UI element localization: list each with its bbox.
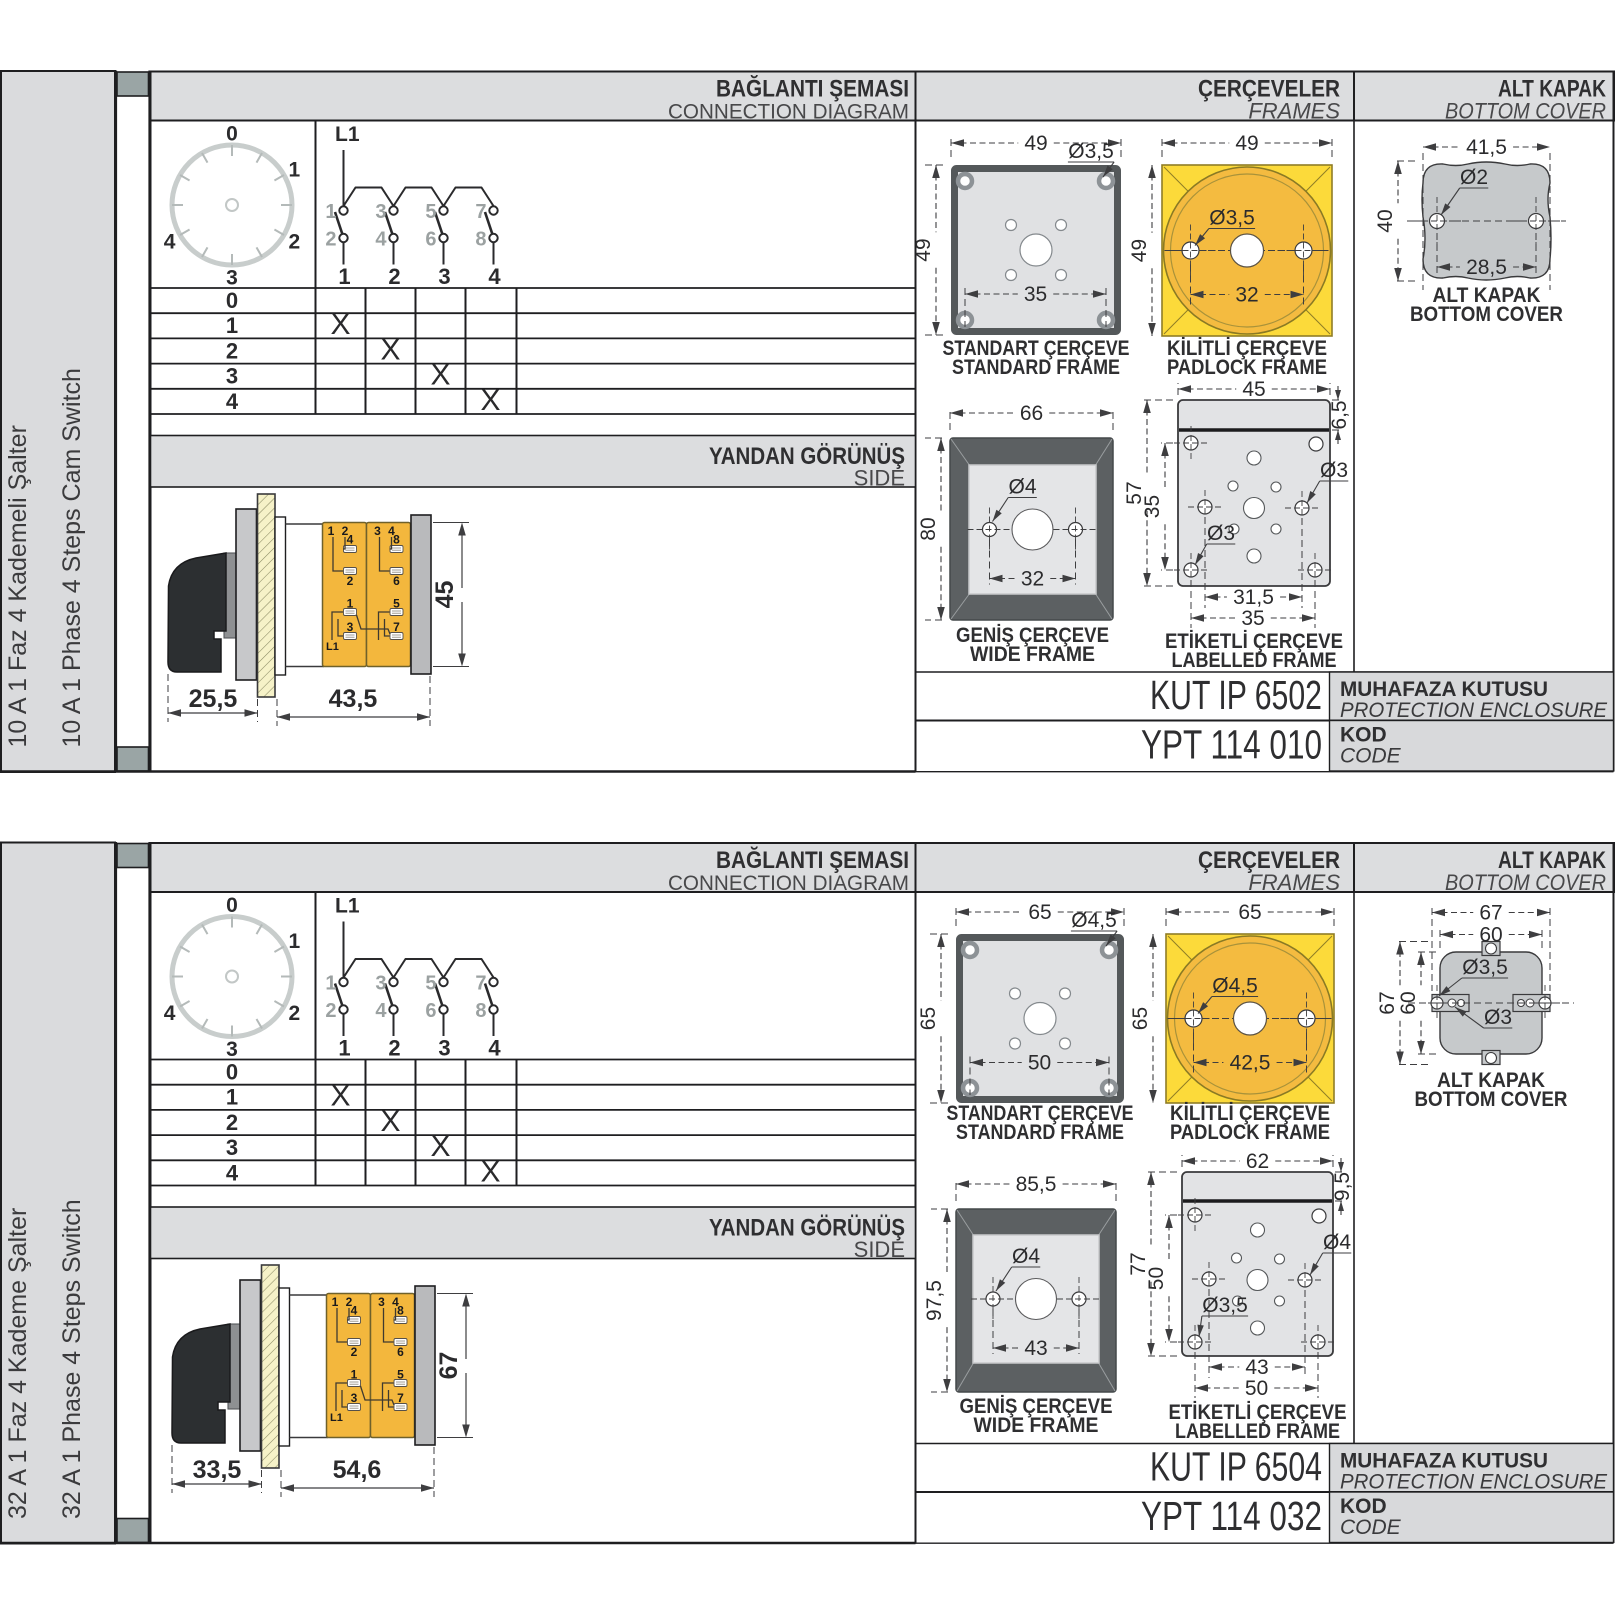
svg-text:KUT IP 6504: KUT IP 6504 (1150, 1444, 1322, 1490)
svg-text:49: 49 (1128, 239, 1151, 262)
svg-text:3: 3 (378, 1295, 385, 1309)
svg-text:CODE: CODE (1340, 1516, 1402, 1539)
svg-text:2: 2 (289, 1002, 301, 1025)
svg-text:1: 1 (338, 1036, 350, 1061)
svg-text:Ø3: Ø3 (1320, 459, 1348, 482)
svg-text:43: 43 (1245, 1356, 1268, 1379)
svg-text:5: 5 (397, 1368, 404, 1382)
svg-text:1: 1 (325, 973, 336, 995)
svg-text:SIDE: SIDE (854, 466, 905, 491)
svg-text:1: 1 (347, 597, 354, 611)
svg-text:MUHAFAZA KUTUSU: MUHAFAZA KUTUSU (1340, 678, 1548, 701)
svg-text:4: 4 (488, 264, 501, 289)
svg-text:4: 4 (375, 229, 387, 251)
svg-text:6: 6 (425, 1000, 436, 1022)
svg-text:50: 50 (1028, 1052, 1051, 1075)
svg-text:66: 66 (1020, 402, 1043, 425)
svg-text:MUHAFAZA KUTUSU: MUHAFAZA KUTUSU (1340, 1450, 1548, 1473)
svg-text:41,5: 41,5 (1466, 136, 1507, 159)
svg-text:Ø3: Ø3 (1484, 1006, 1512, 1029)
svg-text:43,5: 43,5 (329, 685, 378, 713)
svg-text:85,5: 85,5 (1016, 1173, 1057, 1196)
svg-text:35: 35 (1241, 607, 1264, 630)
svg-text:1: 1 (328, 524, 335, 538)
svg-text:50: 50 (1245, 1377, 1268, 1400)
svg-text:Ø3,5: Ø3,5 (1068, 140, 1114, 163)
svg-text:35: 35 (1141, 495, 1164, 518)
svg-text:1: 1 (226, 313, 238, 338)
svg-text:32 A 1 Phase 4 Steps Switch: 32 A 1 Phase 4 Steps Switch (58, 1199, 86, 1519)
svg-text:X: X (430, 1130, 450, 1163)
svg-text:YPT 114 010: YPT 114 010 (1141, 722, 1322, 768)
svg-text:8: 8 (475, 229, 486, 251)
svg-text:32: 32 (1235, 284, 1258, 307)
svg-text:32: 32 (1021, 568, 1044, 591)
svg-text:6: 6 (393, 574, 400, 588)
svg-text:L1: L1 (326, 641, 339, 653)
svg-text:65: 65 (1129, 1007, 1152, 1030)
svg-text:KUT IP 6502: KUT IP 6502 (1150, 672, 1322, 718)
svg-text:4: 4 (375, 1000, 387, 1022)
svg-text:X: X (330, 308, 350, 341)
svg-text:4: 4 (488, 1036, 501, 1061)
svg-text:8: 8 (397, 1304, 404, 1318)
svg-text:8: 8 (475, 1000, 486, 1022)
svg-text:5: 5 (425, 973, 436, 995)
svg-text:X: X (480, 384, 500, 417)
svg-text:65: 65 (917, 1007, 940, 1030)
svg-text:10 A 1 Faz 4 Kademeli Şalter: 10 A 1 Faz 4 Kademeli Şalter (4, 425, 32, 747)
svg-text:67: 67 (1479, 902, 1502, 925)
svg-text:3: 3 (375, 973, 386, 995)
svg-text:1: 1 (325, 201, 336, 223)
svg-text:L1: L1 (335, 123, 360, 146)
svg-text:BOTTOM COVER: BOTTOM COVER (1445, 99, 1606, 124)
svg-text:4: 4 (226, 1160, 239, 1185)
svg-text:PADLOCK FRAME: PADLOCK FRAME (1167, 356, 1327, 379)
svg-text:Ø4,5: Ø4,5 (1071, 909, 1117, 932)
svg-text:YPT 114 032: YPT 114 032 (1141, 1493, 1322, 1539)
svg-text:7: 7 (475, 973, 486, 995)
svg-text:2: 2 (347, 574, 354, 588)
svg-text:L1: L1 (335, 895, 360, 918)
svg-text:BOTTOM COVER: BOTTOM COVER (1410, 303, 1563, 326)
svg-text:5: 5 (393, 597, 400, 611)
svg-text:7: 7 (397, 1391, 404, 1405)
svg-text:7: 7 (393, 620, 400, 634)
svg-text:1: 1 (351, 1368, 358, 1382)
svg-text:67: 67 (435, 1352, 463, 1380)
svg-text:X: X (480, 1155, 500, 1188)
svg-text:49: 49 (1235, 132, 1258, 155)
svg-text:67: 67 (1376, 991, 1399, 1014)
svg-text:2: 2 (351, 1345, 358, 1359)
svg-text:Ø4: Ø4 (1008, 476, 1036, 499)
svg-text:35: 35 (1024, 283, 1047, 306)
svg-text:6,5: 6,5 (1328, 400, 1351, 429)
svg-text:1: 1 (338, 264, 350, 289)
svg-text:Ø3: Ø3 (1207, 522, 1235, 545)
svg-text:WIDE FRAME: WIDE FRAME (970, 643, 1095, 666)
svg-text:28,5: 28,5 (1466, 256, 1507, 279)
svg-text:6: 6 (397, 1345, 404, 1359)
svg-text:3: 3 (438, 1036, 450, 1061)
svg-text:0: 0 (226, 894, 238, 917)
svg-text:Ø3,5: Ø3,5 (1462, 956, 1508, 979)
svg-text:3: 3 (374, 524, 381, 538)
svg-text:45: 45 (431, 581, 459, 609)
svg-text:Ø3,5: Ø3,5 (1209, 207, 1255, 230)
svg-text:33,5: 33,5 (193, 1456, 242, 1484)
svg-text:4: 4 (164, 231, 176, 254)
svg-text:Ø2: Ø2 (1460, 166, 1488, 189)
svg-text:43: 43 (1024, 1337, 1047, 1360)
svg-text:45: 45 (1242, 378, 1265, 401)
svg-text:1: 1 (226, 1085, 238, 1110)
svg-text:2: 2 (226, 338, 238, 363)
svg-text:3: 3 (375, 201, 386, 223)
svg-text:54,6: 54,6 (333, 1456, 382, 1484)
svg-text:FRAMES: FRAMES (1248, 99, 1340, 124)
svg-text:0: 0 (226, 123, 238, 146)
svg-text:PROTECTION ENCLOSURE: PROTECTION ENCLOSURE (1340, 699, 1608, 722)
svg-text:32 A 1 Faz 4 Kademe Şalter: 32 A 1 Faz 4 Kademe Şalter (4, 1208, 32, 1519)
svg-text:X: X (380, 1105, 400, 1138)
svg-text:8: 8 (393, 533, 400, 547)
svg-text:65: 65 (1028, 901, 1051, 924)
svg-text:3: 3 (226, 1038, 238, 1061)
svg-text:62: 62 (1246, 1150, 1269, 1173)
svg-text:4: 4 (347, 533, 354, 547)
svg-text:1: 1 (332, 1295, 339, 1309)
svg-text:4: 4 (226, 389, 239, 414)
svg-text:BAĞLANTI ŞEMASI: BAĞLANTI ŞEMASI (716, 75, 909, 103)
svg-text:BAĞLANTI ŞEMASI: BAĞLANTI ŞEMASI (716, 846, 909, 874)
svg-text:2: 2 (388, 1036, 400, 1061)
svg-text:X: X (380, 333, 400, 366)
svg-text:FRAMES: FRAMES (1248, 870, 1340, 895)
svg-text:3: 3 (226, 1135, 238, 1160)
svg-text:KOD: KOD (1340, 1495, 1387, 1518)
svg-text:50: 50 (1145, 1267, 1168, 1290)
svg-text:Ø4: Ø4 (1012, 1245, 1040, 1268)
svg-text:KOD: KOD (1340, 724, 1387, 747)
svg-text:CODE: CODE (1340, 745, 1402, 768)
svg-text:1: 1 (289, 159, 301, 182)
svg-text:3: 3 (226, 364, 238, 389)
svg-text:STANDARD FRAME: STANDARD FRAME (956, 1121, 1124, 1144)
svg-text:80: 80 (917, 517, 940, 540)
svg-text:9,5: 9,5 (1331, 1172, 1354, 1201)
svg-text:49: 49 (1024, 132, 1047, 155)
svg-text:LABELLED FRAME: LABELLED FRAME (1172, 649, 1337, 672)
svg-text:2: 2 (325, 1000, 336, 1022)
svg-text:10 A 1 Phase 4 Steps Cam Switc: 10 A 1 Phase 4 Steps Cam Switch (58, 368, 86, 747)
svg-text:LABELLED FRAME: LABELLED FRAME (1175, 1420, 1340, 1443)
svg-text:4: 4 (351, 1304, 358, 1318)
svg-text:60: 60 (1397, 991, 1420, 1014)
svg-text:25,5: 25,5 (189, 685, 238, 713)
svg-text:65: 65 (1238, 901, 1261, 924)
svg-text:1: 1 (289, 930, 301, 953)
svg-text:5: 5 (425, 201, 436, 223)
svg-text:WIDE FRAME: WIDE FRAME (974, 1414, 1099, 1437)
svg-text:3: 3 (351, 1391, 358, 1405)
svg-text:6: 6 (425, 229, 436, 251)
svg-text:42,5: 42,5 (1230, 1052, 1271, 1075)
svg-text:STANDARD FRAME: STANDARD FRAME (952, 356, 1120, 379)
svg-text:X: X (330, 1080, 350, 1113)
svg-text:Ø4: Ø4 (1323, 1231, 1351, 1254)
svg-text:3: 3 (226, 267, 238, 290)
svg-text:3: 3 (347, 620, 354, 634)
svg-text:SIDE: SIDE (854, 1237, 905, 1262)
svg-text:4: 4 (164, 1002, 176, 1025)
svg-text:BOTTOM COVER: BOTTOM COVER (1445, 870, 1606, 895)
svg-text:97,5: 97,5 (923, 1280, 946, 1321)
svg-text:Ø4,5: Ø4,5 (1212, 975, 1258, 998)
svg-text:PROTECTION ENCLOSURE: PROTECTION ENCLOSURE (1340, 1471, 1608, 1494)
svg-text:X: X (430, 359, 450, 392)
svg-text:L1: L1 (330, 1412, 343, 1424)
svg-text:2: 2 (325, 229, 336, 251)
svg-text:2: 2 (226, 1110, 238, 1135)
svg-text:BOTTOM COVER: BOTTOM COVER (1415, 1088, 1568, 1111)
svg-text:60: 60 (1479, 924, 1502, 947)
svg-text:0: 0 (226, 288, 238, 313)
svg-text:2: 2 (289, 231, 301, 254)
svg-text:2: 2 (388, 264, 400, 289)
svg-text:3: 3 (438, 264, 450, 289)
svg-text:7: 7 (475, 201, 486, 223)
svg-text:PADLOCK FRAME: PADLOCK FRAME (1170, 1121, 1330, 1144)
svg-text:40: 40 (1374, 209, 1397, 232)
svg-text:31,5: 31,5 (1233, 586, 1274, 609)
svg-text:49: 49 (912, 238, 935, 261)
svg-text:0: 0 (226, 1060, 238, 1085)
